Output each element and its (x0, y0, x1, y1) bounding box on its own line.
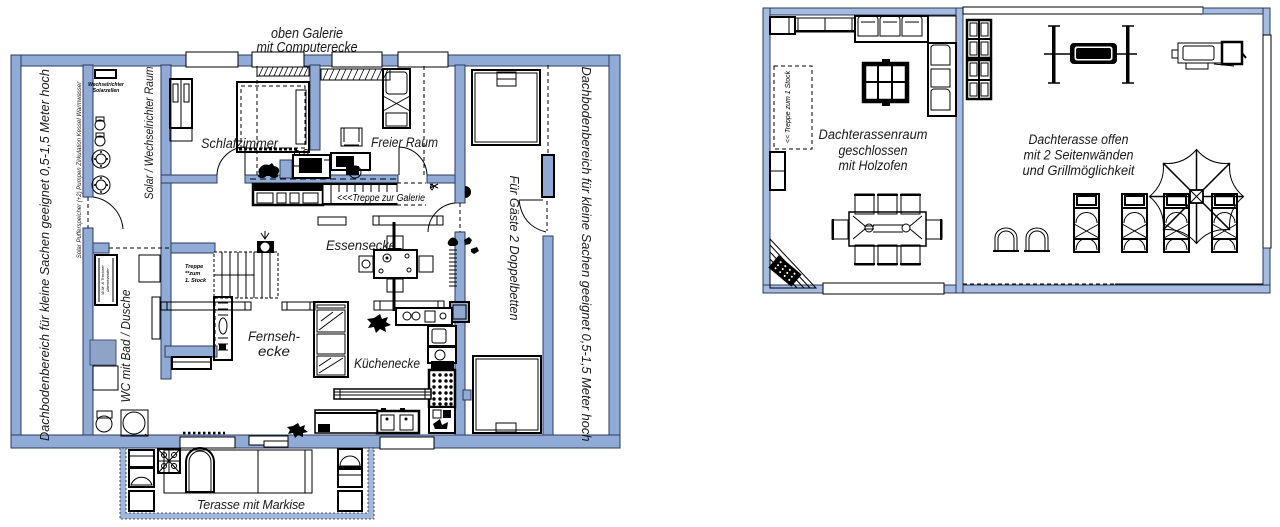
svg-text:ecke: ecke (258, 344, 290, 359)
svg-text:<<<Treppe zur Galerie: <<<Treppe zur Galerie (337, 193, 425, 204)
svg-text:mit Holzofen: mit Holzofen (839, 158, 908, 173)
svg-text:Fernseh-: Fernseh- (248, 329, 300, 344)
svg-text:Dachterassenraum: Dachterassenraum (819, 127, 928, 142)
svg-text:WC mit Bad / Dusche: WC mit Bad / Dusche (119, 289, 133, 402)
svg-text:Freier Raum: Freier Raum (371, 135, 438, 150)
svg-text:Solar Pufferspeicher (+2) Pu: Solar Pufferspeicher (+2) Pumpen Zirkula… (77, 81, 83, 258)
svg-text:Küchenecke: Küchenecke (354, 356, 420, 371)
svg-text:Solarzellen: Solarzellen (93, 88, 119, 94)
svg-text:Terasse mit Markise: Terasse mit Markise (197, 498, 305, 512)
svg-text:<< Treppe zum 1 Stock: << Treppe zum 1 Stock (785, 70, 792, 143)
svg-text:und Grillmöglichkeit: und Grillmöglichkeit (1023, 163, 1136, 178)
svg-text:Für Gäste 2 Doppelbetten: Für Gäste 2 Doppelbetten (507, 176, 521, 321)
svg-text:Dachbodenbereich für kleine: Dachbodenbereich für kleine Sachen geeig… (579, 67, 594, 442)
svg-text:Dachterasse offen: Dachterasse offen (1029, 132, 1129, 147)
svg-text:Solar / Wechselrichter Raum: Solar / Wechselrichter Raum (142, 67, 156, 200)
svg-text:Dachbodenbereich für kleine: Dachbodenbereich für kleine Sachen geeig… (37, 69, 52, 441)
svg-text:Treppe: Treppe (185, 264, 203, 270)
svg-text:mit 2 Seitenwänden: mit 2 Seitenwänden (1024, 148, 1134, 163)
svg-text:geschlossen: geschlossen (839, 143, 908, 158)
svg-text:**zum: **zum (185, 271, 200, 277)
svg-text:übereinander: übereinander (105, 268, 110, 292)
svg-text:1. Stock: 1. Stock (185, 278, 207, 284)
